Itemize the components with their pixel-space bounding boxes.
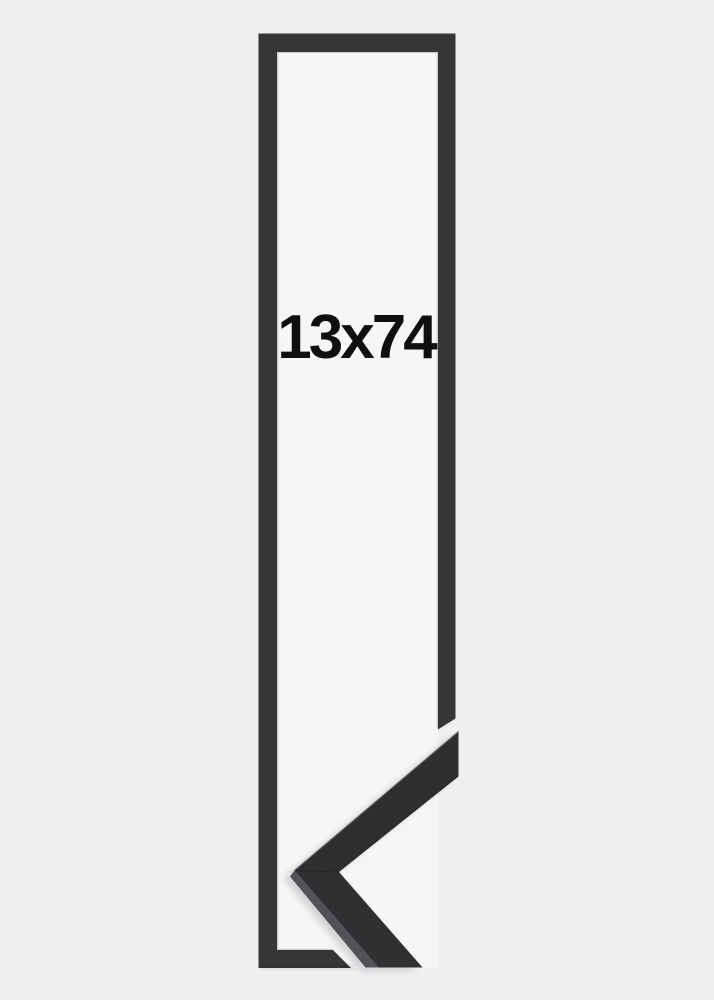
frame-illustration: 13x74 bbox=[0, 0, 714, 1000]
bottom-rail-shadow bbox=[260, 966, 353, 970]
frame-top-rail bbox=[259, 34, 456, 53]
frame-size-label: 13x74 bbox=[277, 303, 438, 372]
product-image: 13x74 bbox=[0, 0, 714, 1000]
frame-left-rail bbox=[259, 34, 278, 969]
frame-right-rail bbox=[438, 34, 456, 730]
